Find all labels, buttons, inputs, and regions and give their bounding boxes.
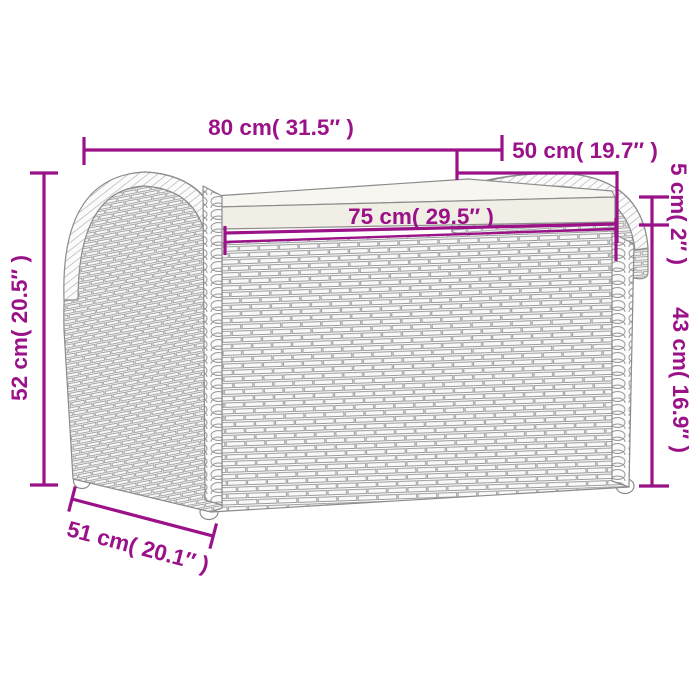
dimension-line-total-height xyxy=(30,173,58,485)
label-box-height: 43 cm( 16.9″ ) xyxy=(668,307,693,453)
label-base-depth: 51 cm( 20.1″ ) xyxy=(64,516,211,577)
label-top-depth: 50 cm( 19.7″ ) xyxy=(512,138,658,163)
storage-bench-dimension-diagram: 80 cm( 31.5″ ) 50 cm( 19.7″ ) 75 cm( 29.… xyxy=(0,0,700,700)
label-seat-width: 75 cm( 29.5″ ) xyxy=(348,204,494,229)
label-cushion-thickness: 5 cm( 2″ ) xyxy=(666,163,691,265)
label-total-height: 52 cm( 20.5″ ) xyxy=(7,255,32,401)
storage-box-front xyxy=(211,228,629,512)
left-corner-braid xyxy=(203,186,222,505)
label-total-width: 80 cm( 31.5″ ) xyxy=(208,115,354,140)
dimension-diagram-canvas: 80 cm( 31.5″ ) 50 cm( 19.7″ ) 75 cm( 29.… xyxy=(0,0,700,700)
right-corner-braid xyxy=(612,233,634,487)
